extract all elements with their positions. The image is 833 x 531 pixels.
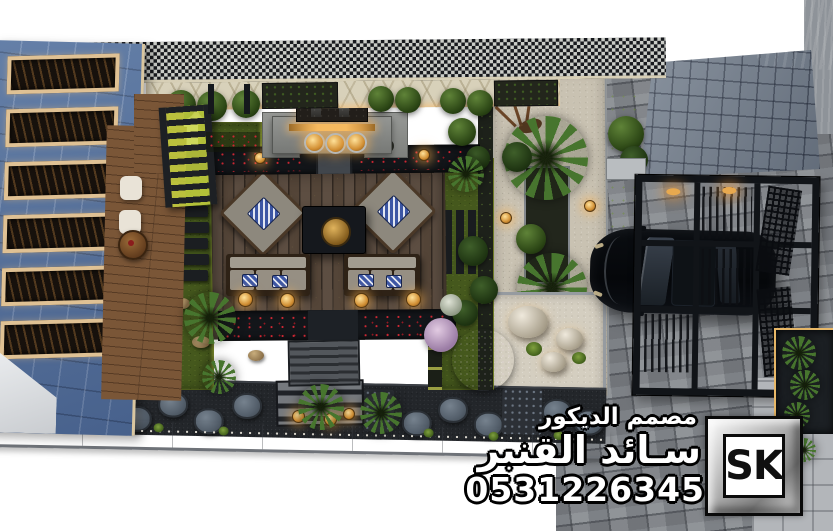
path-light [500, 212, 512, 224]
shrub [516, 224, 546, 254]
landscape-render: مصمم الديكور سـائد القنبر 0531226345 SK [0, 0, 833, 531]
pergola-downlight [722, 187, 736, 194]
fern-bush [470, 276, 498, 304]
pink-flower-bush [424, 318, 458, 352]
red-flower-bed [206, 132, 260, 152]
topiary [467, 90, 493, 116]
agave-plant [298, 384, 344, 430]
gold-tray [321, 217, 351, 247]
stair-ladder [159, 104, 218, 207]
throw-pillow [242, 274, 258, 287]
agave-plant [360, 392, 402, 434]
roof-tiles [640, 50, 820, 178]
agave-plant [202, 360, 236, 394]
garden-steps [288, 339, 361, 386]
white-flower-bush [440, 294, 462, 316]
hedge-planter [262, 82, 338, 109]
pergola-post [244, 84, 250, 114]
channel-bridge [308, 310, 358, 340]
boulder [508, 306, 548, 338]
channel-light [418, 149, 430, 161]
watermark-designer-title: مصمم الديكور [539, 404, 697, 430]
pergola-beam [692, 183, 701, 389]
purple-flower-bush [452, 329, 514, 391]
slat-panel [702, 187, 753, 240]
skylight-window [5, 106, 118, 147]
sofa [226, 254, 310, 296]
pergola-beam [752, 183, 761, 389]
skylight-window [2, 212, 115, 253]
deck-lantern [354, 293, 369, 308]
skylight-window [0, 318, 113, 359]
stepping-stone [438, 397, 468, 424]
path-light [584, 200, 596, 212]
shrub [448, 118, 476, 146]
topiary [368, 86, 394, 112]
deck-lantern [238, 292, 253, 307]
hedge-planter [494, 80, 558, 107]
topiary [440, 88, 466, 114]
grass-tuft [572, 352, 586, 364]
fire-bowl [346, 132, 367, 153]
boulder [556, 328, 583, 350]
watermark-designer-name: سـائد القنبر [478, 428, 701, 472]
petal-channel [218, 309, 456, 341]
skylight-window [7, 53, 120, 94]
throw-pillow [272, 275, 288, 288]
slat-panel [701, 249, 752, 306]
pergola-post [208, 84, 214, 114]
watermark-phone: 0531226345 [465, 470, 705, 509]
palm-tree [790, 370, 820, 400]
pergola-downlight [666, 188, 680, 195]
sofa [344, 254, 420, 296]
lattice-panel [755, 186, 802, 276]
throw-pillow [386, 275, 402, 288]
car-headlight [594, 242, 604, 249]
palm-tree [782, 336, 816, 370]
rock [248, 350, 264, 361]
slat-panel [644, 314, 691, 373]
palm-tree [448, 156, 484, 192]
boulder [541, 352, 566, 372]
skylight-window [4, 159, 117, 200]
deck-lantern [406, 292, 421, 307]
fire-bowl [325, 133, 346, 154]
grass-tuft [526, 342, 542, 356]
sk-logo-text: SK [723, 434, 785, 498]
fern-bush [502, 142, 532, 172]
topiary [395, 87, 421, 113]
throw-pillow [247, 197, 281, 231]
stepping-stone [232, 393, 262, 420]
fern-bush [458, 236, 488, 266]
skylight-window [1, 265, 114, 306]
path-light [343, 408, 355, 420]
throw-pillow [377, 195, 411, 229]
throw-pillow [358, 274, 374, 287]
coffee-table [302, 206, 366, 254]
deck-lantern [280, 293, 295, 308]
floor-cushion [120, 176, 142, 200]
sk-logo: SK [705, 416, 803, 516]
agave-plant [184, 292, 236, 344]
round-table [118, 230, 148, 260]
fire-bowl [304, 132, 325, 153]
lit-slot [289, 124, 375, 131]
